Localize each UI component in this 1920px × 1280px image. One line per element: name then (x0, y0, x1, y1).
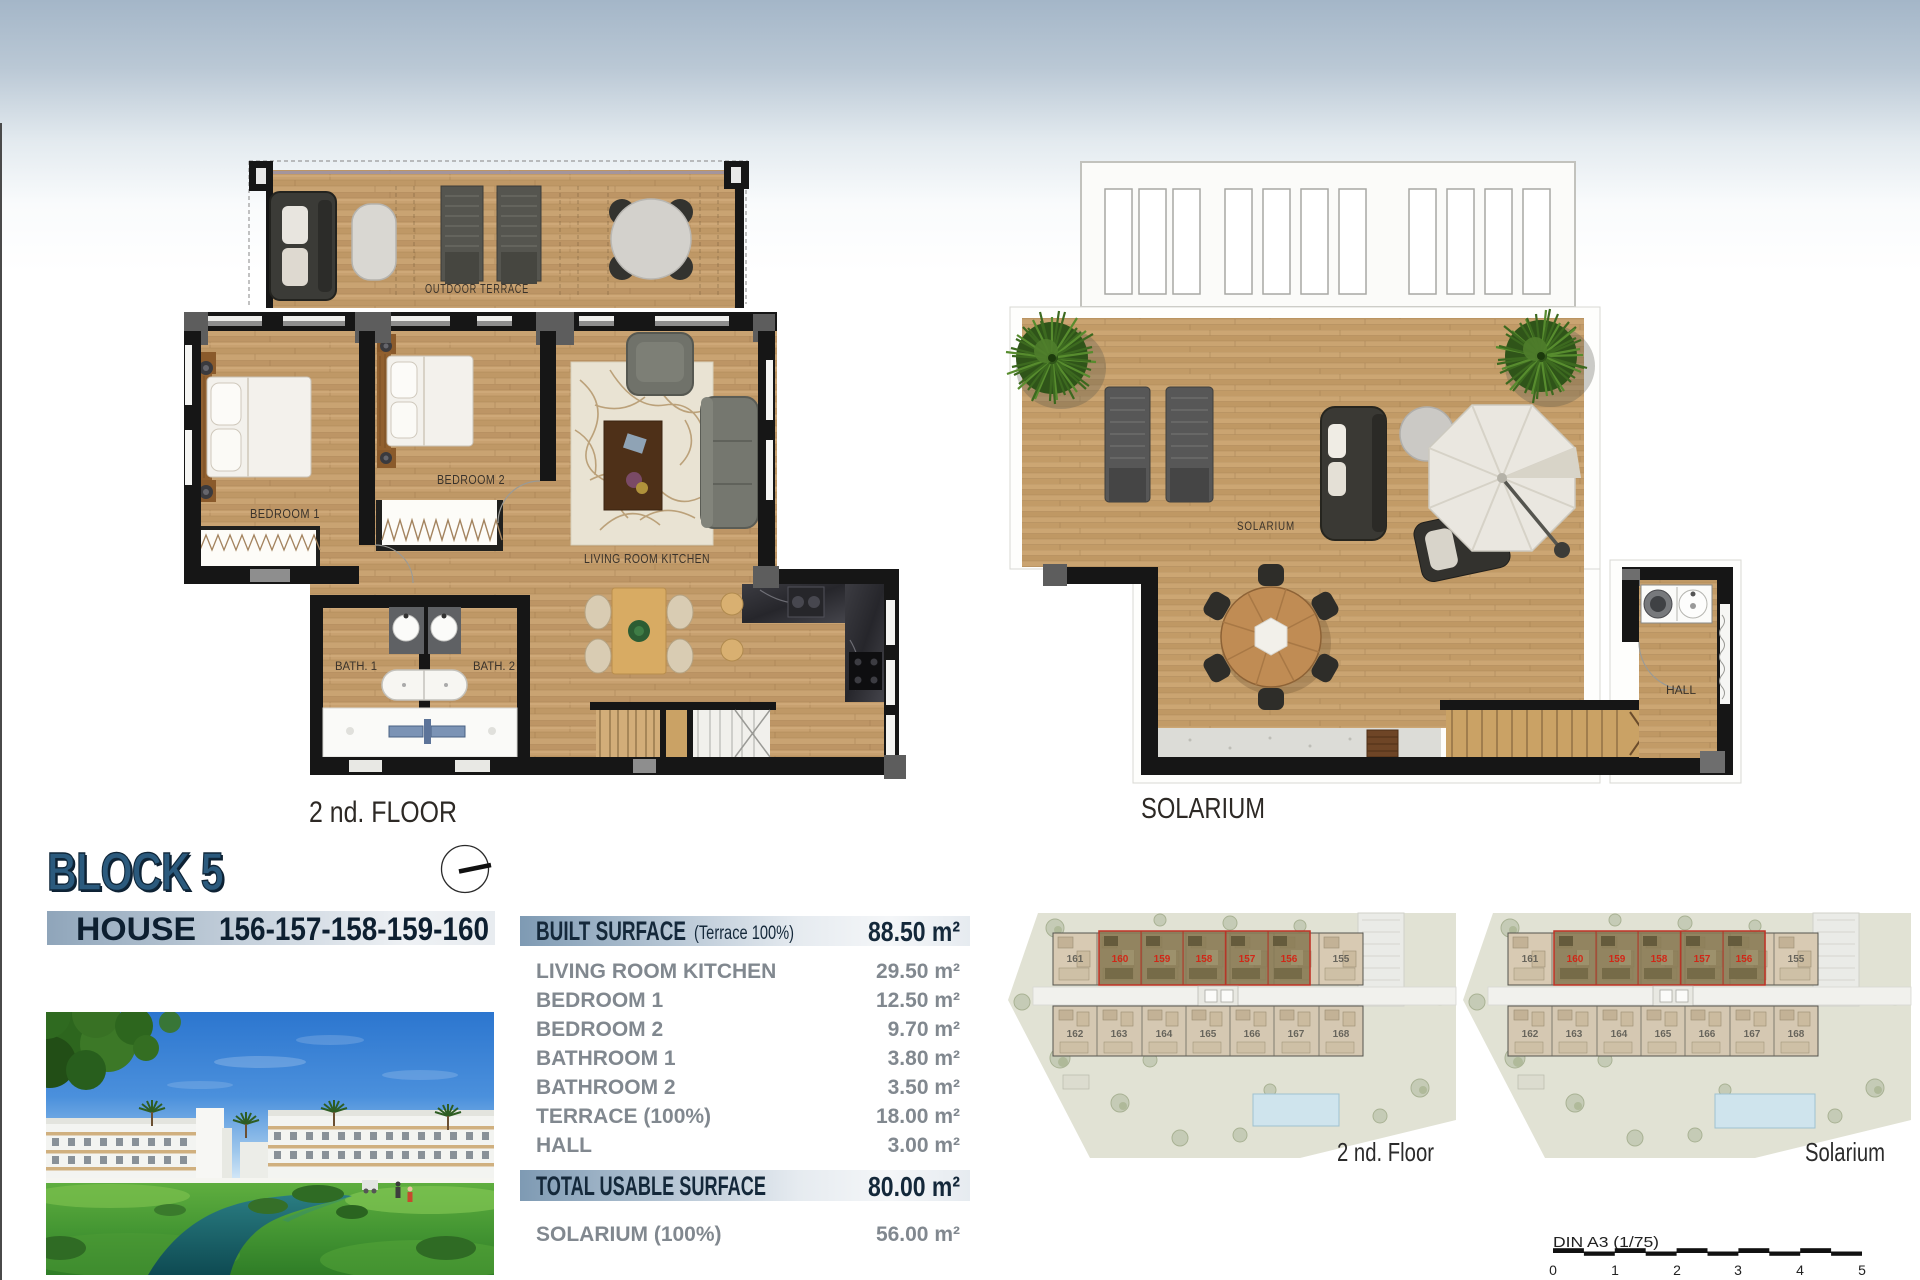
svg-text:156-157-158-159-160: 156-157-158-159-160 (219, 911, 489, 947)
svg-text:BUILT SURFACE: BUILT SURFACE (536, 916, 686, 946)
svg-text:161: 161 (1522, 954, 1539, 965)
svg-text:160: 160 (1112, 954, 1129, 965)
svg-text:80.00 m²: 80.00 m² (868, 1171, 960, 1202)
svg-text:160: 160 (1567, 954, 1584, 965)
svg-text:SOLARIUM: SOLARIUM (1141, 793, 1265, 825)
svg-text:163: 163 (1566, 1029, 1583, 1040)
svg-text:OUTDOOR TERRACE: OUTDOOR TERRACE (425, 282, 529, 296)
svg-text:2 nd. FLOOR: 2 nd. FLOOR (309, 796, 457, 829)
svg-text:168: 168 (1333, 1029, 1350, 1040)
svg-text:3.50 m²: 3.50 m² (888, 1076, 960, 1099)
svg-text:0: 0 (1549, 1262, 1557, 1278)
svg-text:165: 165 (1200, 1029, 1217, 1040)
svg-text:SOLARIUM: SOLARIUM (1237, 521, 1295, 533)
svg-text:162: 162 (1522, 1029, 1539, 1040)
svg-text:155: 155 (1333, 954, 1350, 965)
svg-text:BATH. 1: BATH. 1 (335, 661, 377, 673)
svg-text:88.50 m²: 88.50 m² (868, 916, 960, 947)
svg-text:162: 162 (1067, 1029, 1084, 1040)
svg-text:TERRACE (100%): TERRACE (100%) (536, 1105, 711, 1128)
svg-text:BATHROOM 2: BATHROOM 2 (536, 1076, 676, 1099)
svg-text:HALL: HALL (1666, 685, 1697, 697)
svg-text:TOTAL USABLE SURFACE: TOTAL USABLE SURFACE (536, 1171, 766, 1201)
svg-text:156: 156 (1281, 954, 1298, 965)
svg-text:BLOCK 5: BLOCK 5 (47, 842, 223, 902)
svg-text:164: 164 (1156, 1029, 1173, 1040)
svg-text:HOUSE: HOUSE (76, 911, 196, 947)
svg-text:BATH. 2: BATH. 2 (473, 661, 515, 673)
svg-text:BEDROOM 1: BEDROOM 1 (250, 507, 320, 521)
svg-text:BATHROOM 1: BATHROOM 1 (536, 1047, 676, 1070)
svg-text:167: 167 (1288, 1029, 1305, 1040)
svg-text:159: 159 (1154, 954, 1171, 965)
svg-text:157: 157 (1239, 954, 1256, 965)
svg-text:159: 159 (1609, 954, 1626, 965)
svg-text:156: 156 (1736, 954, 1753, 965)
svg-text:SOLARIUM (100%): SOLARIUM (100%) (536, 1223, 722, 1246)
svg-text:1: 1 (1611, 1262, 1619, 1278)
svg-text:161: 161 (1067, 954, 1084, 965)
svg-text:168: 168 (1788, 1029, 1805, 1040)
svg-text:2: 2 (1673, 1262, 1681, 1278)
svg-text:29.50 m²: 29.50 m² (876, 960, 960, 983)
svg-text:3: 3 (1734, 1262, 1742, 1278)
svg-text:Solarium: Solarium (1805, 1137, 1885, 1167)
svg-text:158: 158 (1651, 954, 1668, 965)
svg-text:LIVING ROOM KITCHEN: LIVING ROOM KITCHEN (536, 960, 776, 983)
svg-text:164: 164 (1611, 1029, 1628, 1040)
svg-text:166: 166 (1699, 1029, 1716, 1040)
svg-text:165: 165 (1655, 1029, 1672, 1040)
svg-text:166: 166 (1244, 1029, 1261, 1040)
svg-text:18.00 m²: 18.00 m² (876, 1105, 960, 1128)
svg-text:155: 155 (1788, 954, 1805, 965)
svg-text:BEDROOM 2: BEDROOM 2 (437, 473, 505, 487)
svg-text:(Terrace 100%): (Terrace 100%) (694, 923, 794, 944)
svg-text:167: 167 (1744, 1029, 1761, 1040)
svg-text:2 nd. Floor: 2 nd. Floor (1337, 1137, 1434, 1167)
svg-text:LIVING ROOM KITCHEN: LIVING ROOM KITCHEN (584, 551, 710, 566)
svg-text:3.80 m²: 3.80 m² (888, 1047, 960, 1070)
svg-text:158: 158 (1196, 954, 1213, 965)
svg-text:157: 157 (1694, 954, 1711, 965)
svg-text:HALL: HALL (536, 1134, 592, 1157)
svg-text:BEDROOM 2: BEDROOM 2 (536, 1018, 663, 1041)
svg-text:5: 5 (1858, 1262, 1866, 1278)
svg-text:4: 4 (1796, 1262, 1804, 1278)
svg-text:9.70 m²: 9.70 m² (888, 1018, 960, 1041)
svg-text:163: 163 (1111, 1029, 1128, 1040)
svg-text:3.00 m²: 3.00 m² (888, 1134, 960, 1157)
svg-text:12.50 m²: 12.50 m² (876, 989, 960, 1012)
svg-text:BEDROOM 1: BEDROOM 1 (536, 989, 664, 1012)
svg-text:56.00 m²: 56.00 m² (876, 1223, 960, 1246)
